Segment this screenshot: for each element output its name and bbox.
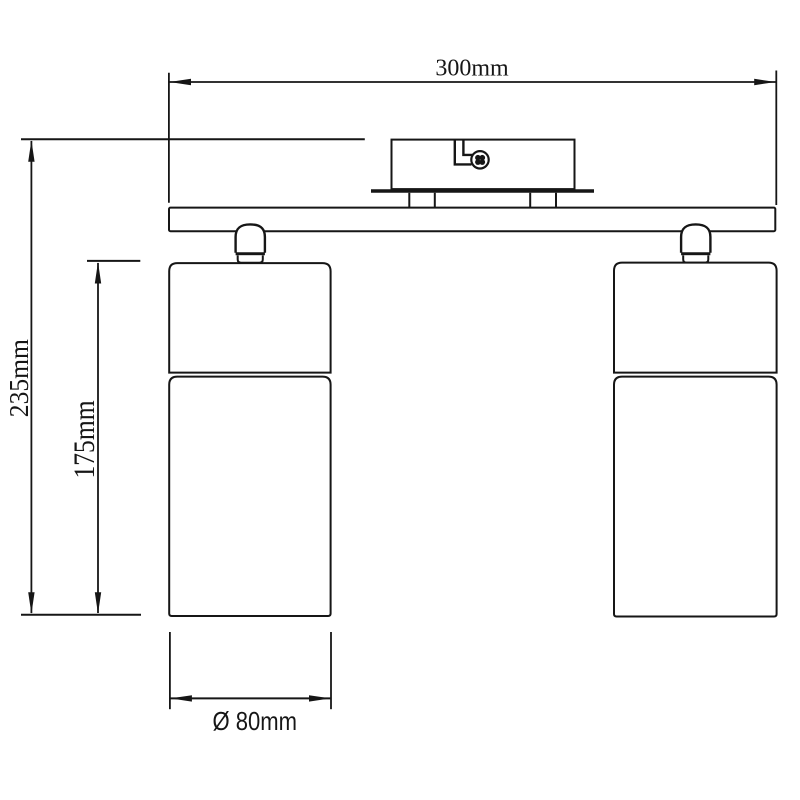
svg-text:300mm: 300mm — [435, 56, 509, 82]
svg-text:Ø 80mm: Ø 80mm — [213, 706, 298, 736]
svg-text:235mm: 235mm — [3, 339, 34, 417]
svg-text:175mm: 175mm — [68, 400, 101, 478]
